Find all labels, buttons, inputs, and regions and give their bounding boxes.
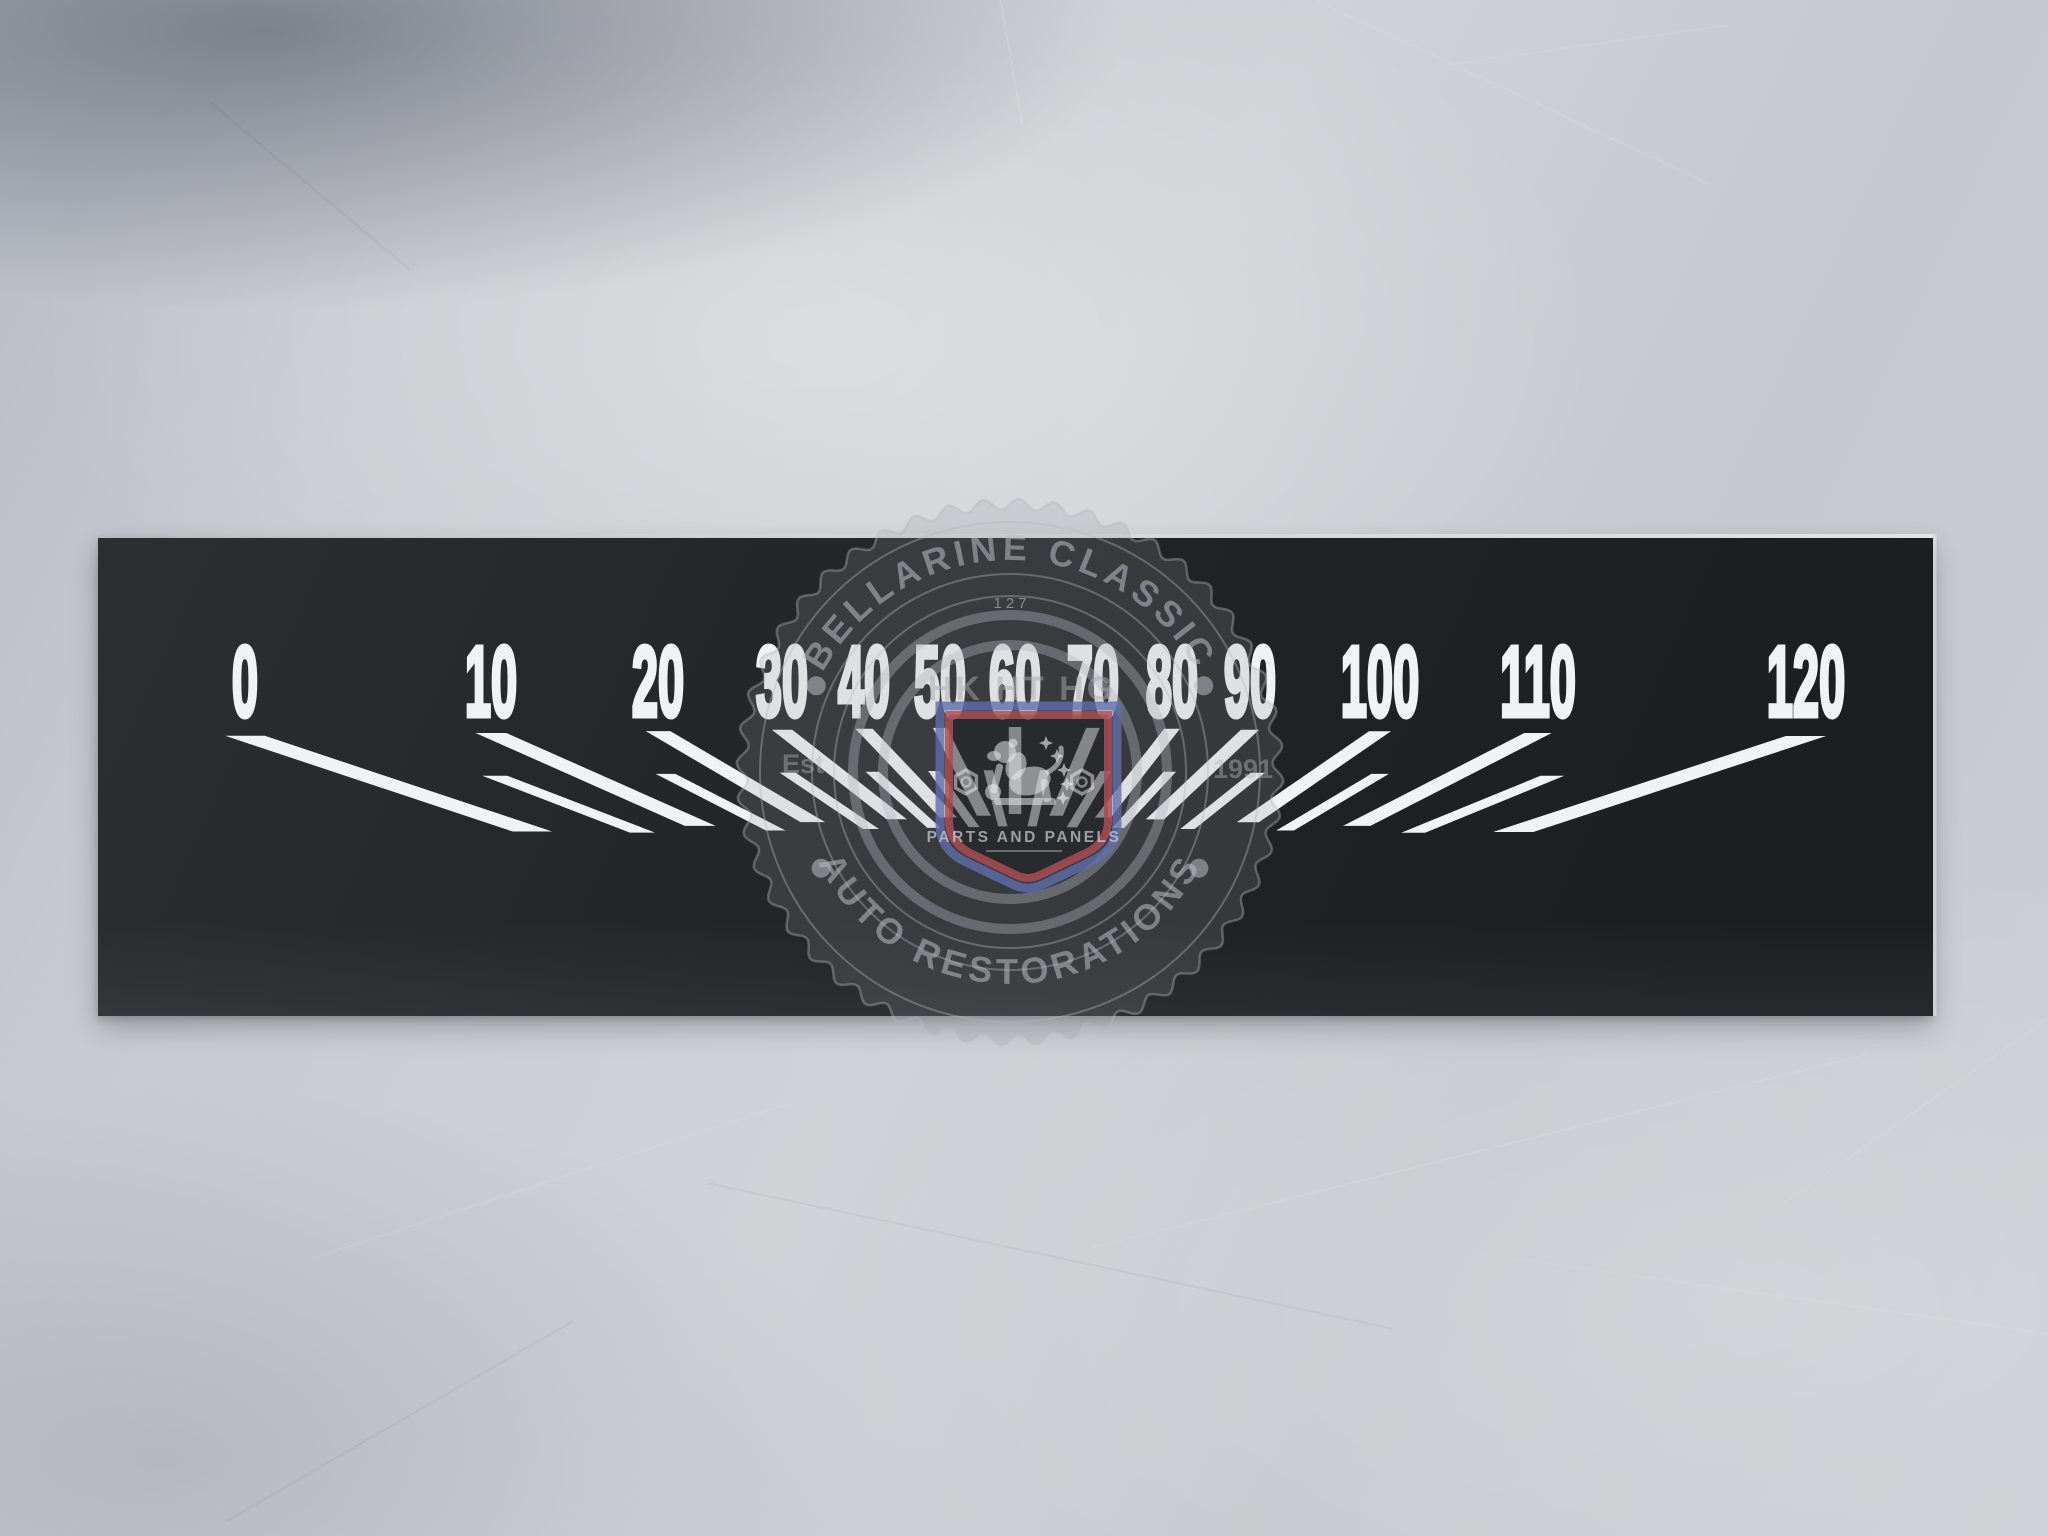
lion-stone (985, 784, 1001, 800)
product-photo: 0102030405060708090100110120 BELLARINE C… (0, 0, 2048, 1536)
scale-numeral-120: 120 (1767, 625, 1845, 738)
badge-caption: PARTS AND PANELS (927, 829, 1122, 846)
scale-numeral-110: 110 (1500, 625, 1576, 738)
lion-muzzle (987, 751, 1001, 761)
scale-numeral-10: 10 (465, 625, 517, 738)
scale-numeral-100: 100 (1341, 625, 1419, 738)
scale-numeral-0: 0 (232, 625, 258, 738)
speedometer-decal-photo: 0102030405060708090100110120 BELLARINE C… (0, 0, 2048, 1536)
lion-ear (1009, 739, 1018, 748)
faceplate-right-edge-highlight (1933, 534, 1937, 1016)
stamp-est-year: 1991 (1213, 754, 1273, 784)
stamp-bullet-dot (1194, 676, 1213, 695)
scale-numeral-20: 20 (632, 625, 684, 738)
stamp-est-label: Est (782, 749, 824, 779)
stamp-bullet-dot (1189, 859, 1208, 878)
stamp-bullet-dot (807, 676, 826, 695)
stamp-bullet-dot (812, 859, 831, 878)
stamp-serial-number: 127 (993, 595, 1030, 612)
lion-base (994, 798, 1056, 805)
